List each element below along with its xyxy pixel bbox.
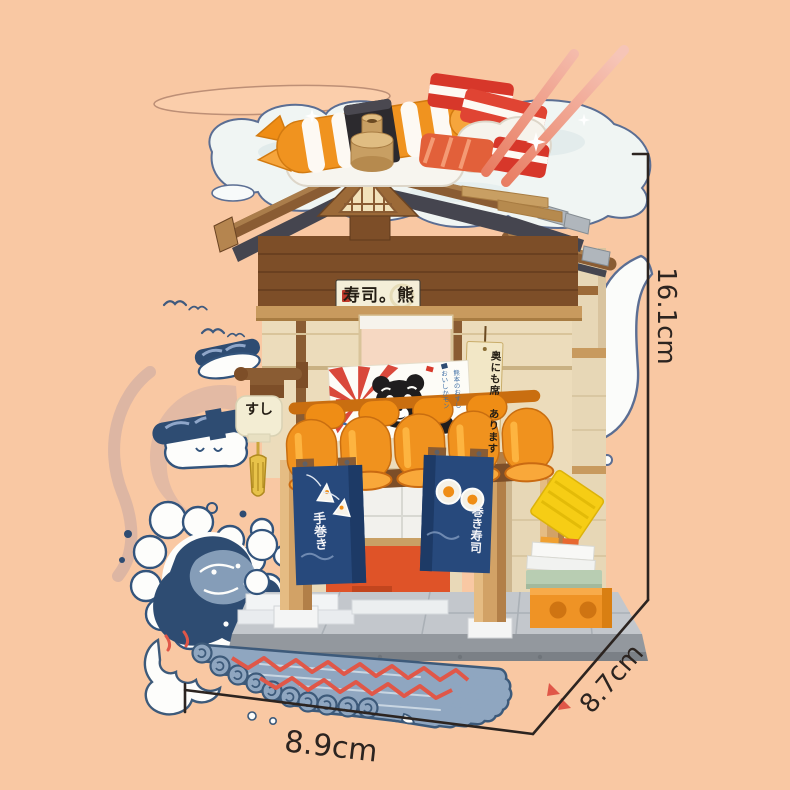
product-photo: 16.1cm 8.7cm 8.9cm 寿司。熊 すし 奥にも席 あります 手巻き… [0, 0, 790, 790]
scene-art [0, 0, 790, 790]
seal-stamp-icon [342, 290, 350, 302]
noren-right-flag [420, 447, 494, 573]
noren-left-flag [292, 457, 366, 585]
